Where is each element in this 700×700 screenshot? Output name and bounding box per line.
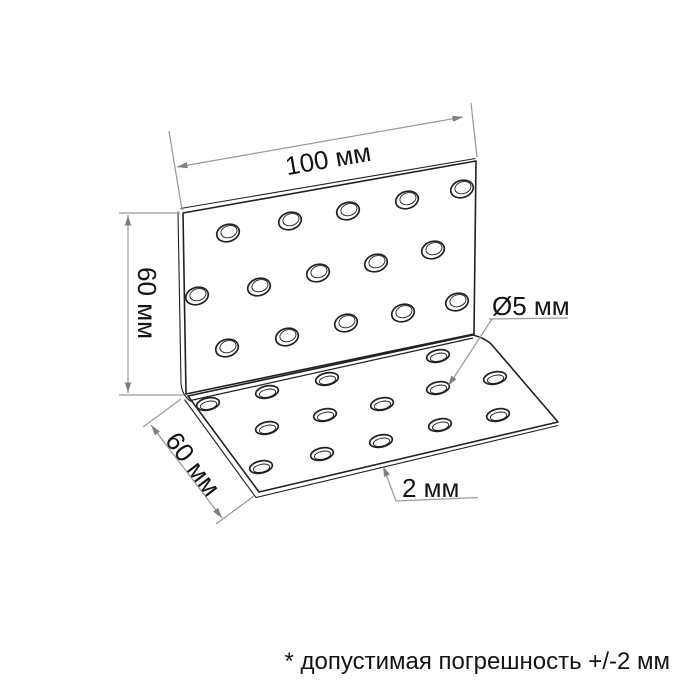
height-arrowhead-top — [125, 215, 131, 226]
thickness-label: 2 мм — [402, 473, 459, 503]
depth-arrowhead-bottom — [213, 508, 222, 518]
height-arrowhead-bottom — [125, 383, 131, 394]
depth-label: 60 мм — [159, 426, 226, 501]
height-label: 60 мм — [132, 267, 162, 339]
depth-extension-line-bottom — [216, 496, 254, 524]
height-dimension: 60 мм — [119, 213, 184, 395]
depth-arrowhead-top — [151, 425, 160, 435]
thickness-callout: 2 мм — [383, 466, 478, 503]
depth-extension-line-top — [143, 399, 181, 427]
angle-bracket-drawing: 100 мм 60 мм 60 мм Ø5 мм — [0, 0, 700, 700]
thickness-arrowhead — [383, 466, 390, 477]
tolerance-note: * допустимая погрешность +/-2 мм — [285, 648, 671, 675]
technical-drawing-page: 100 мм 60 мм 60 мм Ø5 мм — [0, 0, 700, 700]
width-extension-line-right — [471, 103, 477, 157]
width-label: 100 мм — [283, 137, 373, 181]
hole-diameter-label: Ø5 мм — [492, 291, 570, 321]
width-extension-line-left — [169, 131, 182, 210]
